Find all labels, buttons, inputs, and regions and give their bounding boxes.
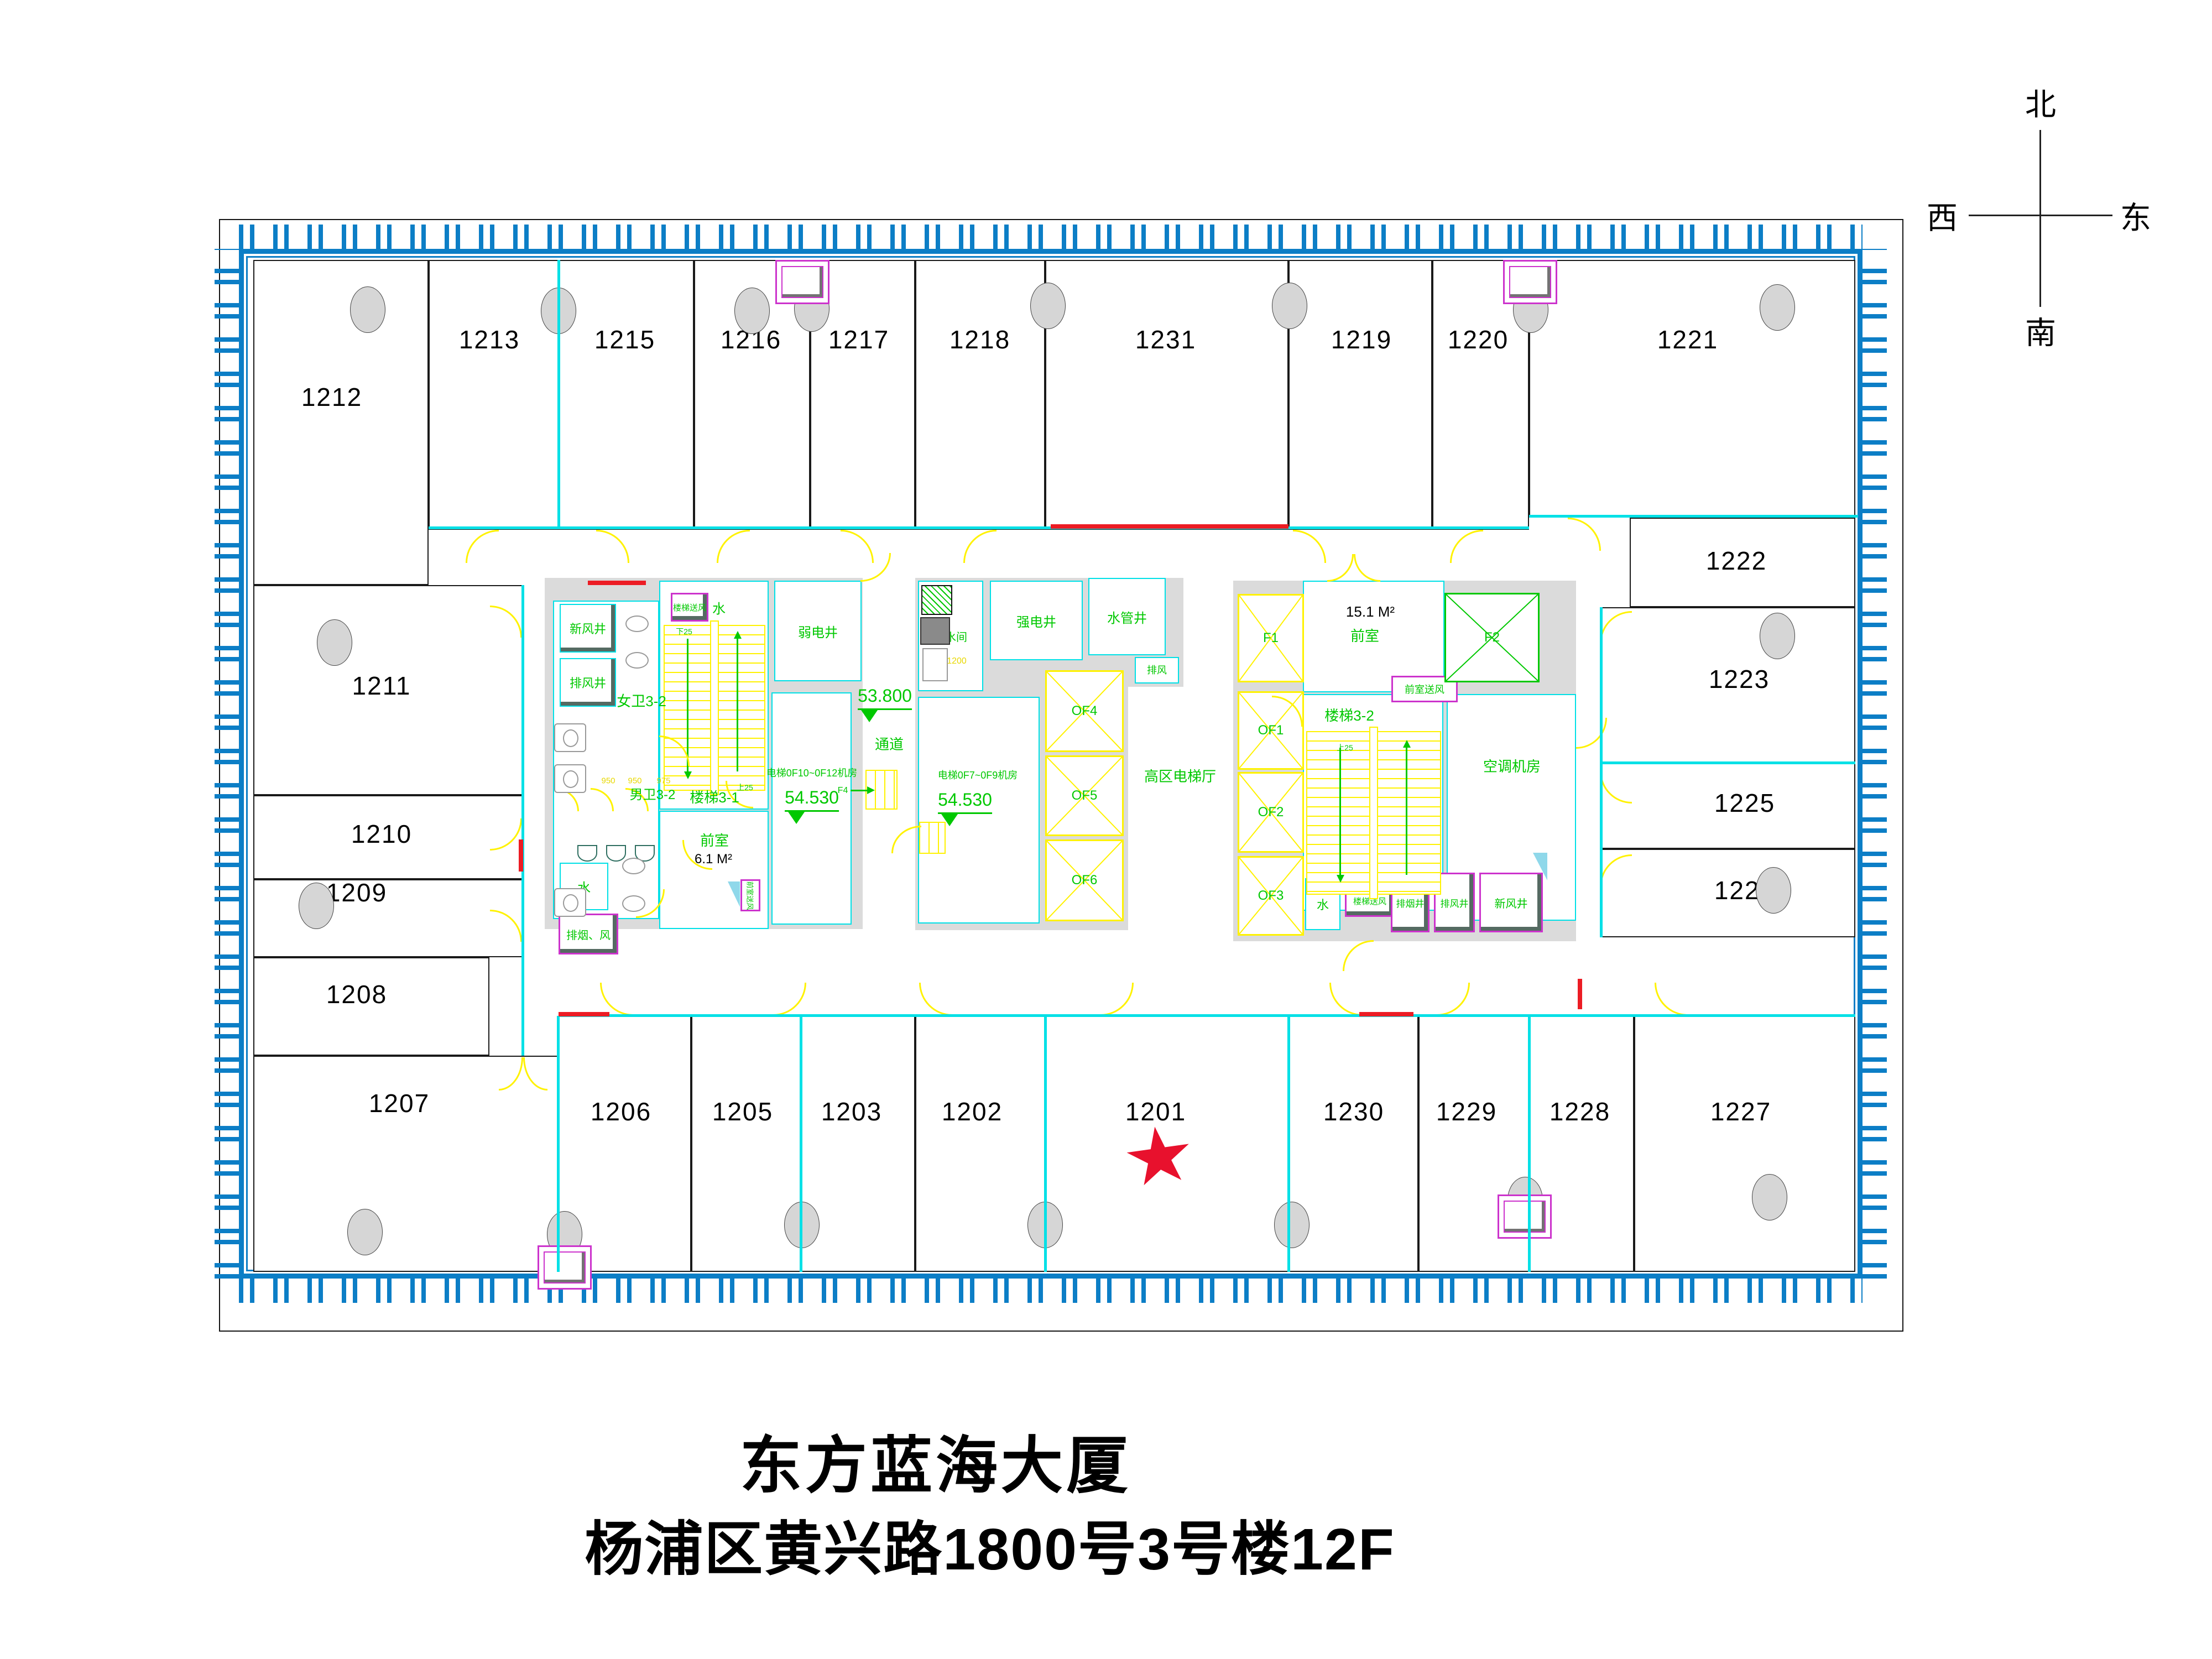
room-1207 — [253, 1056, 559, 1272]
wall-segment-cyan — [1634, 1014, 1855, 1017]
wall-segment-cyan — [800, 1016, 802, 1272]
fire-hydrant-inner — [1504, 1201, 1546, 1233]
room-label-1202: 1202 — [942, 1099, 1003, 1124]
column — [1752, 1174, 1787, 1220]
urinal-fixture — [606, 845, 626, 862]
room-1221 — [1529, 260, 1855, 518]
stair-arrow-2 — [1339, 748, 1341, 875]
shaft-fresh-b: 新风井 — [1479, 873, 1543, 932]
annotation-19: 15.1 M² — [1346, 604, 1395, 619]
elevator-label-OF3: OF3 — [1258, 888, 1284, 904]
room-label-1211: 1211 — [352, 673, 411, 698]
shaft-exhaust-air: 排风井 — [560, 658, 616, 707]
wall-segment-cyan — [557, 1016, 560, 1272]
room-1205 — [691, 1016, 801, 1272]
column — [350, 286, 385, 333]
room-label-1207: 1207 — [369, 1091, 430, 1116]
shaft-strong-current: 强电井 — [990, 581, 1083, 660]
elevator-label-F1: F1 — [1263, 630, 1279, 646]
annotation-14: 通道 — [875, 737, 904, 752]
elevator-label-OF2: OF2 — [1258, 805, 1284, 820]
wall-segment-cyan — [1528, 1016, 1531, 1272]
room-1212 — [253, 260, 429, 585]
room-label-1217: 1217 — [828, 327, 889, 352]
shaft-strong-current-label: 强电井 — [1016, 611, 1056, 630]
shaft-stair-supply: 楼梯送风 — [671, 593, 708, 622]
annotation-7: 上25 — [737, 784, 753, 791]
stair-treads-3 — [919, 822, 946, 854]
room-label-1201: 1201 — [1125, 1099, 1186, 1124]
annotation-0: 女卫3-2 — [617, 694, 666, 708]
annotation-22: 上25 — [1337, 744, 1353, 752]
wc-fixture — [554, 888, 586, 917]
elevator-OF2: OF2 — [1238, 772, 1304, 853]
shaft-smoke-exhaust-label: 排烟、风 — [566, 926, 611, 942]
wall-segment-red — [1359, 1012, 1413, 1016]
wall-segment-cyan — [1287, 1016, 1290, 1272]
mullion-band-bottom — [239, 1279, 1863, 1303]
annotation-11: 975 — [656, 777, 670, 785]
room-label-1229: 1229 — [1436, 1099, 1497, 1124]
shaft-exhaust-air-label: 排风井 — [570, 674, 606, 691]
room-1215 — [559, 260, 694, 530]
fire-hydrant-box — [1498, 1194, 1552, 1239]
elevator-label-OF5: OF5 — [1072, 788, 1098, 804]
tea-equip-hatch — [921, 585, 952, 615]
room-label-1206: 1206 — [591, 1099, 651, 1124]
column — [734, 288, 770, 334]
wall-segment-red — [588, 581, 646, 585]
room-1218 — [915, 260, 1045, 530]
stair-arrow-0 — [687, 639, 688, 771]
wall-segment-cyan — [521, 585, 524, 1056]
building-name: 东方蓝海大厦 — [740, 1416, 1131, 1505]
annotation-23: 空调机房 — [1483, 759, 1541, 774]
tea-sink — [922, 648, 948, 681]
compass-vertical-line — [2039, 130, 2041, 307]
annotation-21: 楼梯3-2 — [1324, 708, 1374, 723]
wall-segment-cyan — [1600, 607, 1603, 937]
room-label-1212: 1212 — [301, 384, 362, 410]
room-label-1208: 1208 — [326, 982, 387, 1007]
room-label-1221: 1221 — [1657, 327, 1718, 352]
room-label-1213: 1213 — [459, 327, 520, 352]
room-label-1219: 1219 — [1331, 327, 1392, 352]
basin-fixture — [622, 858, 645, 874]
annotation-4: 6.1 M² — [695, 853, 732, 866]
room-label-1218: 1218 — [950, 327, 1010, 352]
room-1227 — [1634, 1016, 1855, 1272]
elevation-marker: 53.800 — [858, 686, 912, 710]
annotation-20: 前室 — [1350, 629, 1379, 643]
annotation-3: 前室 — [700, 833, 729, 848]
tea-equip-dark — [920, 617, 950, 645]
room-label-1222: 1222 — [1706, 548, 1767, 573]
compass-west-label: 西 — [1927, 194, 1958, 238]
shaft-anteroom-supply: 前室送风 — [740, 879, 760, 911]
fire-hydrant-inner — [1509, 266, 1551, 298]
column — [1760, 613, 1795, 659]
room-label-1210: 1210 — [351, 821, 412, 847]
room-label-1223: 1223 — [1709, 666, 1770, 692]
wall-segment-cyan — [429, 526, 1529, 529]
elevation-value: 54.530 — [785, 787, 839, 812]
room-water-b-label: 水 — [1317, 895, 1329, 913]
wall-segment-red — [1578, 979, 1582, 1009]
fire-hydrant-inner — [781, 266, 823, 298]
wall-segment-cyan — [1600, 761, 1855, 764]
shaft-weak-current-label: 弱电井 — [798, 622, 838, 641]
basin-fixture — [622, 895, 645, 912]
annotation-13: F4 — [838, 786, 848, 795]
floor-plan: 1212121312151216121712181231121912201221… — [0, 0, 2212, 1659]
urinal-fixture — [577, 845, 597, 862]
annotation-2: 楼梯3-1 — [690, 790, 739, 805]
stair-arrow-3 — [1406, 748, 1407, 875]
compass-south-label: 南 — [2025, 309, 2056, 353]
room-label-1215: 1215 — [594, 327, 655, 352]
stair-rail-0 — [710, 620, 719, 795]
wc-fixture — [554, 723, 586, 752]
room-1231 — [1045, 260, 1288, 530]
column — [1030, 283, 1066, 329]
shaft-stair-supply-label: 楼梯送风 — [673, 602, 706, 613]
elevator-F1: F1 — [1238, 594, 1304, 682]
building-address: 杨浦区黄兴路1800号3号楼12F — [585, 1501, 1395, 1587]
annotation-10: 950 — [628, 777, 641, 785]
room-label-1228: 1228 — [1550, 1099, 1610, 1124]
annotation-9: 950 — [601, 777, 615, 785]
shaft-fresh-air: 新风井 — [560, 604, 616, 653]
wall-segment-red — [1051, 524, 1288, 529]
shaft-anteroom-supply-label: 前室送风 — [745, 881, 756, 910]
column — [1756, 867, 1791, 914]
elevator-label-OF4: OF4 — [1072, 703, 1098, 719]
wall-segment-cyan — [557, 260, 560, 528]
elevation-value: 54.530 — [938, 790, 992, 814]
room-1213 — [429, 260, 559, 530]
basin-fixture — [625, 652, 649, 669]
shaft-exhaust-b-label: 排风井 — [1441, 896, 1469, 910]
column — [347, 1209, 383, 1255]
annotation-5: 水 — [712, 603, 726, 616]
mullion-band-right — [1863, 249, 1887, 1279]
elevator-OF5: OF5 — [1045, 755, 1124, 836]
wall-segment-red — [519, 839, 523, 872]
elevation-marker: 54.530 — [785, 787, 839, 812]
shaft-fresh-b-label: 新风井 — [1495, 895, 1528, 911]
room-label-1220: 1220 — [1448, 327, 1509, 352]
annotation-6: 下25 — [676, 628, 692, 635]
compass-horizontal-line — [1969, 215, 2112, 216]
wall-segment-cyan — [1044, 1016, 1047, 1272]
column — [317, 619, 352, 666]
room-label-1209: 1209 — [326, 880, 387, 905]
elevator-label-F2: F2 — [1484, 630, 1500, 645]
stair-arrow-4 — [851, 790, 867, 791]
column — [1272, 283, 1307, 329]
fire-hydrant-box — [538, 1245, 592, 1290]
elevator-OF1: OF1 — [1238, 691, 1304, 770]
annotation-17: 排风 — [1147, 665, 1167, 675]
wc-bowl — [563, 770, 578, 788]
column — [1274, 1202, 1310, 1248]
shaft-fresh-air-label: 新风井 — [570, 619, 606, 637]
shaft-smoke-b-label: 排烟井 — [1396, 896, 1425, 910]
elevator-OF3: OF3 — [1238, 856, 1304, 936]
wall-segment-cyan — [1529, 515, 1858, 518]
elevator-OF4: OF4 — [1045, 670, 1124, 752]
room-1202 — [915, 1016, 1045, 1272]
wc-bowl — [563, 729, 578, 747]
room-label-1231: 1231 — [1135, 327, 1196, 352]
column — [299, 883, 334, 929]
shaft-anteroom-supply-b-label: 前室送风 — [1405, 682, 1444, 696]
fire-hydrant-box — [775, 260, 830, 304]
room-label-1203: 1203 — [821, 1099, 882, 1124]
elevation-value: 53.800 — [858, 686, 912, 710]
shaft-weak-current: 弱电井 — [774, 581, 862, 681]
mullion-band-left — [215, 249, 239, 1279]
wall-segment-red — [559, 1012, 609, 1016]
wc-fixture — [554, 764, 586, 793]
annotation-15: 电梯0F7~0F9机房 — [938, 770, 1018, 780]
basin-fixture — [625, 615, 649, 632]
room-label-1205: 1205 — [712, 1099, 773, 1124]
fire-hydrant-box — [1503, 260, 1557, 304]
wc-bowl — [563, 894, 578, 912]
mullion-band-top — [239, 225, 1863, 249]
room-1209 — [253, 879, 523, 957]
compass-north-label: 北 — [2025, 80, 2056, 125]
wall-segment-cyan — [559, 1014, 1634, 1017]
shaft-smoke-exhaust: 排烟、风 — [559, 914, 618, 954]
shaft-water-pipe-label: 水管井 — [1107, 607, 1147, 627]
elevator-label-OF6: OF6 — [1072, 873, 1098, 888]
fire-hydrant-inner — [544, 1251, 586, 1284]
elevator-OF6: OF6 — [1045, 839, 1124, 921]
annotation-16: 1200 — [947, 657, 967, 666]
elevation-marker: 54.530 — [938, 790, 992, 814]
room-1219 — [1288, 260, 1432, 530]
elevator-F2: F2 — [1444, 593, 1540, 682]
annotation-18: 高区电梯厅 — [1144, 769, 1216, 784]
stair-rail-1 — [1369, 727, 1378, 899]
shaft-water-pipe: 水管井 — [1088, 578, 1166, 655]
column — [1760, 284, 1795, 331]
compass-rose: 北 南 西 东 — [1897, 66, 2184, 365]
annotation-1: 男卫3-2 — [630, 789, 676, 802]
stair-arrow-1 — [737, 639, 738, 771]
room-label-1225: 1225 — [1714, 790, 1775, 816]
room-1201 — [1045, 1016, 1288, 1272]
compass-east-label: 东 — [2120, 194, 2151, 238]
room-label-1230: 1230 — [1323, 1099, 1384, 1124]
room-label-1227: 1227 — [1710, 1099, 1771, 1124]
annotation-12: 电梯0F10~0F12机房 — [766, 768, 858, 778]
